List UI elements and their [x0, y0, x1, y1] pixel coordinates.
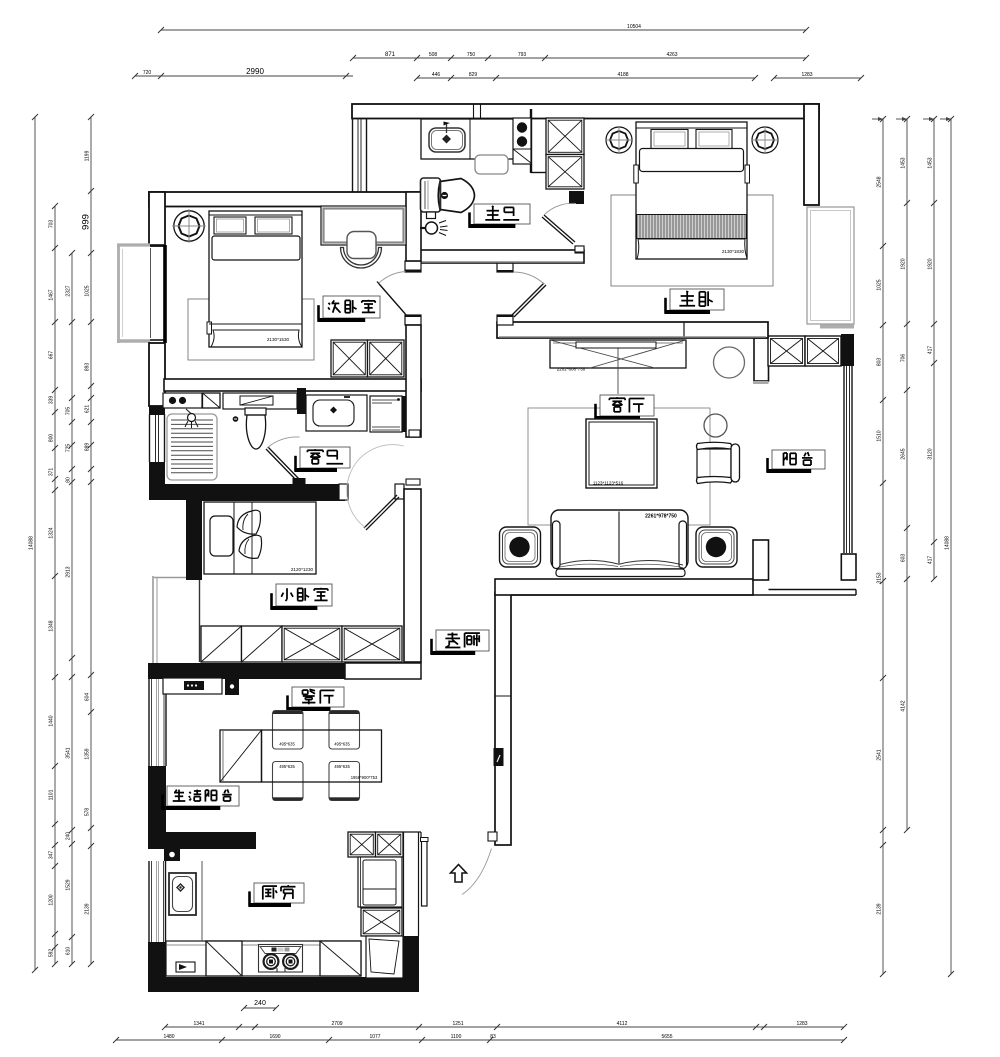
- svg-text:4188: 4188: [617, 72, 628, 78]
- svg-text:2541: 2541: [877, 749, 883, 760]
- svg-text:1920: 1920: [901, 258, 907, 269]
- svg-text:1359: 1359: [85, 748, 91, 759]
- svg-text:2548: 2548: [877, 176, 883, 187]
- svg-text:495*635: 495*635: [334, 764, 350, 769]
- svg-text:1453: 1453: [901, 157, 907, 168]
- svg-text:667: 667: [49, 351, 55, 360]
- svg-text:803: 803: [877, 358, 883, 367]
- svg-text:1480: 1480: [163, 1034, 174, 1040]
- svg-text:1025: 1025: [85, 285, 91, 296]
- svg-text:1324: 1324: [49, 527, 55, 538]
- svg-text:417: 417: [928, 346, 934, 355]
- svg-text:2709: 2709: [331, 1021, 342, 1027]
- svg-text:240: 240: [254, 1000, 266, 1007]
- svg-text:3153: 3153: [877, 572, 883, 583]
- svg-text:1440: 1440: [49, 715, 55, 726]
- svg-text:2120*1230: 2120*1230: [291, 567, 314, 572]
- svg-text:1958*900*753: 1958*900*753: [351, 775, 378, 780]
- svg-text:339: 339: [49, 396, 55, 405]
- svg-text:495*635: 495*635: [334, 742, 350, 747]
- svg-text:495*635: 495*635: [279, 764, 295, 769]
- svg-text:2202*608*730: 2202*608*730: [557, 367, 586, 372]
- svg-text:1077: 1077: [369, 1034, 380, 1040]
- svg-text:4142: 4142: [901, 700, 907, 711]
- svg-text:2990: 2990: [246, 67, 264, 76]
- svg-text:508: 508: [429, 52, 438, 58]
- svg-text:893: 893: [85, 363, 91, 372]
- svg-text:1251: 1251: [452, 1021, 463, 1027]
- svg-text:706: 706: [901, 354, 907, 363]
- svg-text:1200: 1200: [49, 894, 55, 905]
- svg-text:2645: 2645: [901, 448, 907, 459]
- svg-text:829: 829: [469, 72, 478, 78]
- svg-text:2261*978*750: 2261*978*750: [645, 514, 677, 520]
- svg-text:83: 83: [490, 1034, 496, 1040]
- svg-text:371: 371: [49, 468, 55, 477]
- svg-text:1123*1123*516: 1123*1123*516: [593, 481, 624, 486]
- svg-text:621: 621: [85, 405, 91, 414]
- svg-text:3541: 3541: [66, 747, 72, 758]
- svg-text:2130*1830: 2130*1830: [722, 249, 745, 254]
- svg-text:14088: 14088: [29, 536, 35, 550]
- svg-text:417: 417: [928, 556, 934, 565]
- svg-text:703: 703: [49, 220, 55, 229]
- svg-text:603: 603: [901, 554, 907, 563]
- svg-text:725: 725: [66, 444, 72, 453]
- svg-text:1348: 1348: [49, 620, 55, 631]
- svg-text:889: 889: [85, 443, 91, 452]
- svg-text:1283: 1283: [801, 72, 812, 78]
- svg-text:1199: 1199: [85, 150, 91, 161]
- svg-text:5655: 5655: [661, 1034, 672, 1040]
- svg-text:610: 610: [66, 947, 72, 956]
- svg-text:999: 999: [81, 214, 92, 230]
- svg-text:578: 578: [85, 808, 91, 817]
- svg-text:10504: 10504: [627, 24, 641, 30]
- svg-text:750: 750: [467, 52, 476, 58]
- svg-text:1510: 1510: [877, 430, 883, 441]
- svg-text:592: 592: [49, 949, 55, 958]
- svg-text:2139: 2139: [877, 903, 883, 914]
- svg-text:2913: 2913: [66, 566, 72, 577]
- svg-text:1920: 1920: [928, 258, 934, 269]
- svg-text:1690: 1690: [269, 1034, 280, 1040]
- svg-text:1467: 1467: [49, 289, 55, 300]
- svg-text:14088: 14088: [945, 536, 951, 550]
- svg-text:2139: 2139: [85, 903, 91, 914]
- svg-text:240: 240: [66, 832, 72, 841]
- svg-text:1529: 1529: [66, 879, 72, 890]
- svg-text:800: 800: [49, 434, 55, 443]
- svg-text:1283: 1283: [796, 1021, 807, 1027]
- svg-text:2130*1530: 2130*1530: [267, 337, 290, 342]
- svg-text:793: 793: [518, 52, 527, 58]
- svg-text:1101: 1101: [49, 789, 55, 800]
- svg-text:2327: 2327: [66, 285, 72, 296]
- svg-text:1100: 1100: [451, 1034, 462, 1040]
- svg-text:720: 720: [143, 70, 152, 76]
- svg-text:1453: 1453: [928, 157, 934, 168]
- svg-text:1341: 1341: [193, 1021, 204, 1027]
- svg-text:871: 871: [385, 52, 396, 58]
- svg-text:705: 705: [66, 407, 72, 416]
- svg-text:446: 446: [432, 72, 441, 78]
- svg-text:347: 347: [49, 851, 55, 860]
- svg-text:4263: 4263: [666, 52, 677, 58]
- svg-text:604: 604: [85, 693, 91, 702]
- svg-text:1025: 1025: [877, 279, 883, 290]
- svg-text:80: 80: [66, 477, 72, 483]
- svg-text:4112: 4112: [617, 1021, 628, 1027]
- svg-text:495*635: 495*635: [279, 742, 295, 747]
- svg-text:3120: 3120: [928, 448, 934, 459]
